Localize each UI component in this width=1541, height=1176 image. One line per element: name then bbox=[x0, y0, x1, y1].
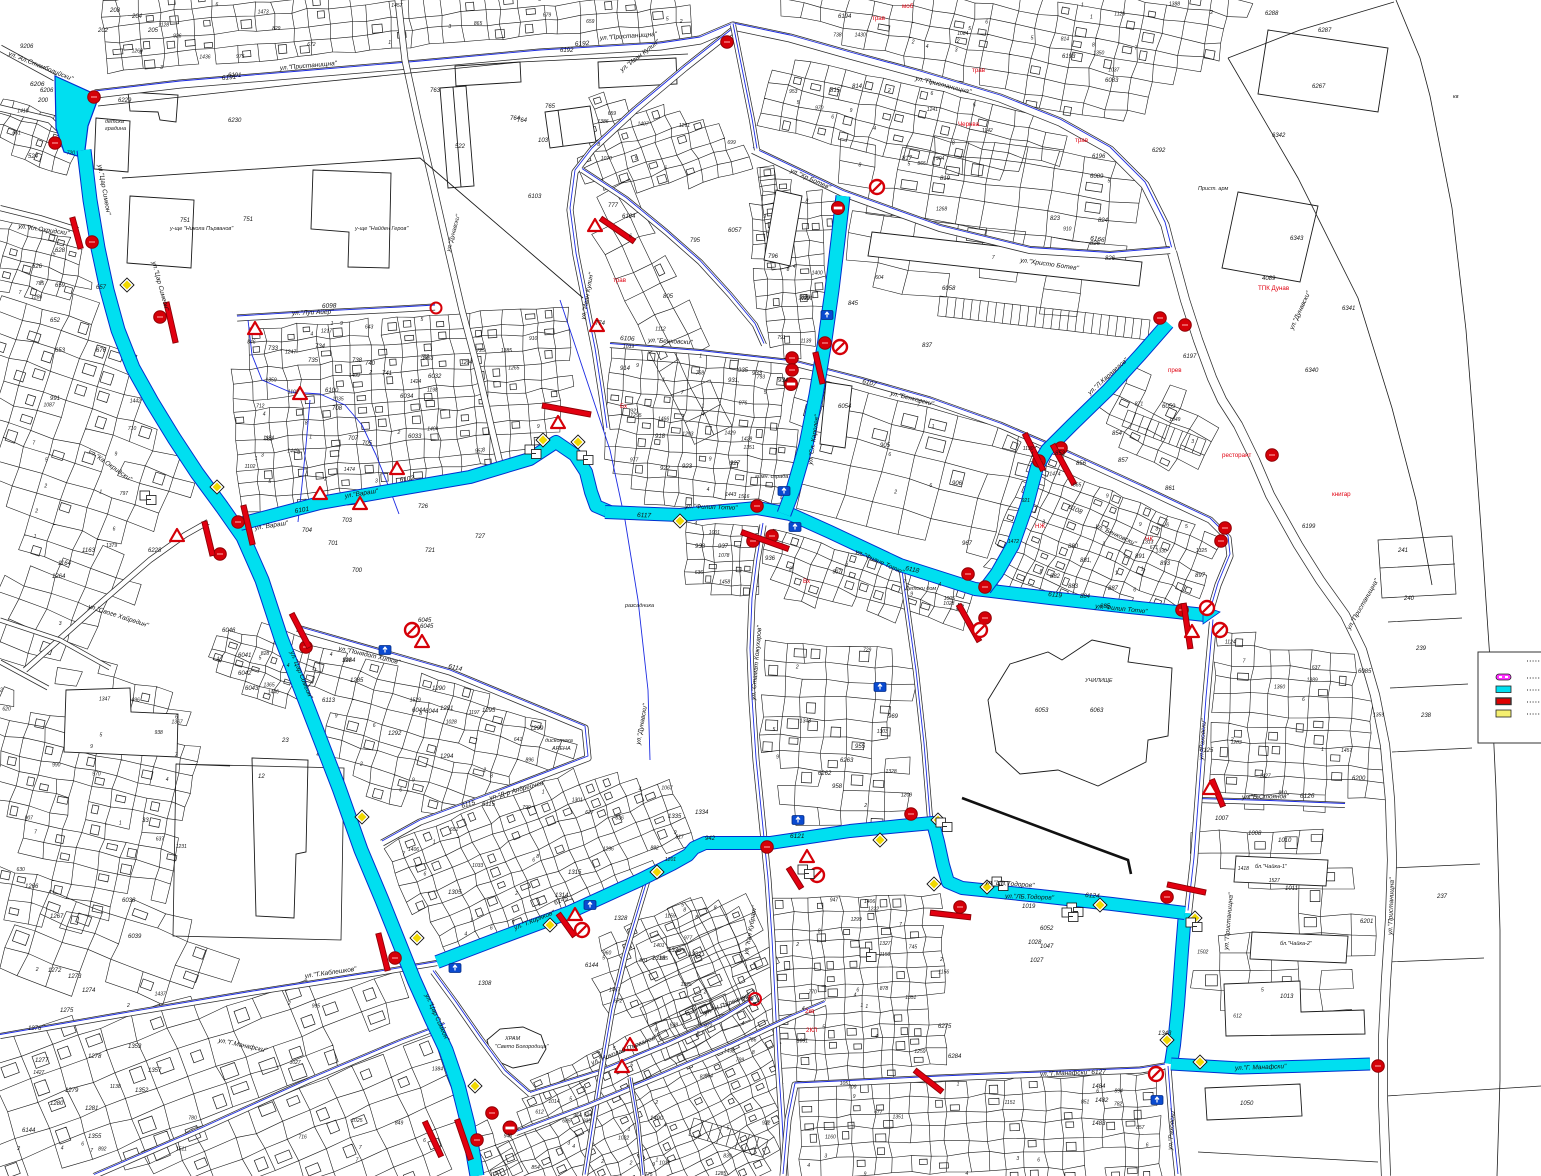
svg-text:5: 5 bbox=[100, 732, 103, 738]
svg-text:6046: 6046 bbox=[222, 628, 236, 634]
svg-text:1430: 1430 bbox=[855, 32, 866, 38]
svg-text:1267: 1267 bbox=[50, 914, 64, 920]
svg-text:1281: 1281 bbox=[85, 1106, 98, 1112]
svg-text:955: 955 bbox=[855, 744, 866, 750]
svg-text:626: 626 bbox=[32, 264, 43, 270]
svg-text:882: 882 bbox=[1050, 574, 1061, 580]
svg-text:4: 4 bbox=[287, 663, 290, 669]
svg-text:1347: 1347 bbox=[99, 696, 110, 702]
svg-text:6: 6 bbox=[929, 483, 932, 489]
svg-text:1: 1 bbox=[1115, 571, 1118, 577]
svg-text:1360: 1360 bbox=[1274, 685, 1285, 691]
svg-text:1286: 1286 bbox=[31, 295, 42, 301]
svg-text:1527: 1527 bbox=[1269, 878, 1280, 884]
svg-text:4: 4 bbox=[330, 652, 333, 658]
svg-text:6: 6 bbox=[216, 2, 219, 8]
svg-text:799: 799 bbox=[522, 805, 531, 811]
svg-text:923: 923 bbox=[682, 464, 693, 470]
svg-text:2: 2 bbox=[1209, 10, 1213, 16]
svg-text:240: 240 bbox=[1403, 596, 1415, 602]
svg-text:707: 707 bbox=[348, 436, 359, 442]
svg-text:1446: 1446 bbox=[268, 690, 279, 696]
svg-text:1: 1 bbox=[34, 534, 37, 540]
svg-text:815: 815 bbox=[830, 88, 841, 94]
svg-text:1457: 1457 bbox=[391, 3, 402, 9]
svg-text:9: 9 bbox=[1106, 493, 1109, 499]
svg-text:884: 884 bbox=[1080, 594, 1091, 600]
svg-text:1050: 1050 bbox=[1240, 1101, 1254, 1107]
svg-text:712: 712 bbox=[256, 404, 265, 410]
svg-text:865: 865 bbox=[1073, 482, 1082, 488]
svg-text:735: 735 bbox=[308, 358, 319, 364]
svg-text:853: 853 bbox=[1055, 451, 1066, 457]
svg-text:8: 8 bbox=[859, 163, 862, 169]
svg-text:524: 524 bbox=[28, 154, 39, 160]
svg-text:914: 914 bbox=[620, 366, 631, 372]
svg-text:857: 857 bbox=[1118, 458, 1129, 464]
svg-text:1027: 1027 bbox=[1030, 958, 1044, 964]
svg-text:1: 1 bbox=[388, 40, 391, 46]
svg-text:1: 1 bbox=[1141, 566, 1144, 572]
svg-text:1355: 1355 bbox=[88, 1134, 102, 1140]
svg-text:922: 922 bbox=[660, 466, 671, 472]
svg-text:6: 6 bbox=[985, 19, 988, 25]
svg-text:6117: 6117 bbox=[637, 512, 652, 519]
svg-text:726: 726 bbox=[418, 504, 429, 510]
svg-text:1150: 1150 bbox=[880, 952, 891, 958]
svg-text:653: 653 bbox=[55, 348, 66, 354]
svg-text:дискотека: дискотека bbox=[545, 738, 573, 744]
svg-text:7: 7 bbox=[359, 1145, 362, 1151]
svg-text:810: 810 bbox=[1278, 790, 1287, 796]
svg-text:7: 7 bbox=[34, 830, 37, 836]
svg-text:1275: 1275 bbox=[60, 1008, 74, 1014]
svg-text:1: 1 bbox=[628, 1127, 631, 1133]
svg-text:2: 2 bbox=[863, 803, 867, 809]
svg-text:8: 8 bbox=[419, 711, 422, 717]
svg-text:814,: 814, bbox=[852, 84, 864, 90]
svg-text:6: 6 bbox=[1166, 523, 1169, 529]
svg-text:627: 627 bbox=[585, 810, 594, 816]
svg-text:1084: 1084 bbox=[957, 31, 968, 37]
svg-text:1067: 1067 bbox=[661, 786, 672, 792]
svg-text:7: 7 bbox=[903, 579, 906, 585]
svg-text:727: 727 bbox=[475, 534, 486, 540]
svg-text:2КЛ: 2КЛ bbox=[806, 1027, 817, 1034]
svg-text:1: 1 bbox=[1090, 15, 1093, 21]
svg-text:807: 807 bbox=[833, 569, 842, 575]
svg-text:1102: 1102 bbox=[288, 390, 299, 396]
svg-text:938: 938 bbox=[155, 730, 164, 736]
svg-text:1379: 1379 bbox=[106, 543, 117, 549]
svg-text:6: 6 bbox=[399, 788, 402, 794]
svg-text:1473: 1473 bbox=[258, 10, 269, 16]
svg-text:964: 964 bbox=[573, 1113, 582, 1119]
svg-text:1388: 1388 bbox=[1169, 1, 1180, 7]
svg-text:1130: 1130 bbox=[1023, 446, 1034, 452]
svg-text:5: 5 bbox=[45, 458, 48, 464]
svg-text:1: 1 bbox=[699, 354, 702, 360]
svg-text:1: 1 bbox=[255, 456, 258, 462]
svg-text:УЧИЛИЩЕ: УЧИЛИЩЕ bbox=[1084, 678, 1113, 684]
svg-text:745: 745 bbox=[909, 945, 918, 951]
svg-text:1269: 1269 bbox=[132, 48, 143, 54]
svg-text:948: 948 bbox=[504, 1133, 513, 1139]
svg-text:1285: 1285 bbox=[350, 678, 364, 684]
svg-text:1025: 1025 bbox=[351, 1118, 362, 1124]
svg-text:6: 6 bbox=[1096, 1089, 1099, 1095]
svg-text:6230: 6230 bbox=[228, 118, 242, 124]
svg-text:1442: 1442 bbox=[130, 399, 141, 405]
svg-text:991: 991 bbox=[50, 396, 60, 402]
svg-text:1259: 1259 bbox=[914, 1049, 925, 1055]
svg-text:1229: 1229 bbox=[801, 296, 812, 302]
svg-text:921: 921 bbox=[1022, 498, 1031, 504]
svg-text:у-ще "Никола Първанов": у-ще "Никола Първанов" bbox=[169, 226, 234, 232]
svg-text:1201: 1201 bbox=[665, 857, 676, 863]
svg-text:1351: 1351 bbox=[893, 1115, 904, 1121]
svg-text:5: 5 bbox=[569, 1097, 572, 1103]
svg-text:1511: 1511 bbox=[176, 1147, 187, 1153]
svg-text:738: 738 bbox=[352, 358, 363, 364]
svg-text:825: 825 bbox=[1090, 241, 1101, 247]
svg-text:612: 612 bbox=[535, 1110, 544, 1116]
svg-text:1001: 1001 bbox=[709, 530, 720, 536]
svg-text:1022: 1022 bbox=[618, 1135, 629, 1141]
svg-text:1305: 1305 bbox=[448, 890, 462, 896]
svg-text:5: 5 bbox=[822, 1025, 825, 1031]
svg-text:935: 935 bbox=[583, 1119, 592, 1125]
svg-text:7: 7 bbox=[917, 403, 920, 409]
svg-text:5: 5 bbox=[1185, 524, 1188, 530]
svg-text:854: 854 bbox=[1112, 431, 1123, 437]
svg-text:1458: 1458 bbox=[719, 580, 730, 586]
svg-text:679: 679 bbox=[543, 13, 552, 19]
svg-text:1294: 1294 bbox=[440, 754, 454, 760]
svg-text:6038: 6038 bbox=[122, 898, 136, 904]
svg-text:8: 8 bbox=[305, 420, 308, 426]
svg-text:9: 9 bbox=[512, 920, 515, 926]
svg-text:1049: 1049 bbox=[1169, 417, 1180, 423]
svg-text:1039: 1039 bbox=[623, 344, 634, 350]
svg-text:1308: 1308 bbox=[478, 981, 492, 987]
svg-text:947: 947 bbox=[830, 897, 839, 903]
svg-text:6193: 6193 bbox=[1062, 54, 1076, 60]
svg-text:782: 782 bbox=[421, 354, 430, 360]
svg-text:разсадника: разсадника bbox=[624, 603, 654, 609]
svg-text:6045: 6045 bbox=[418, 618, 432, 624]
svg-text:677: 677 bbox=[874, 1109, 883, 1115]
svg-text:926: 926 bbox=[173, 34, 182, 40]
svg-text:1365: 1365 bbox=[264, 682, 275, 688]
svg-text:трав: трав bbox=[972, 67, 986, 74]
svg-text:кв: кв bbox=[1453, 94, 1459, 100]
svg-text:6: 6 bbox=[697, 1031, 700, 1037]
svg-text:814: 814 bbox=[1061, 37, 1070, 43]
svg-text:1472: 1472 bbox=[1008, 539, 1019, 545]
svg-text:1330: 1330 bbox=[668, 948, 682, 954]
svg-text:9: 9 bbox=[850, 108, 853, 114]
svg-text:700: 700 bbox=[352, 568, 363, 574]
svg-text:795: 795 bbox=[690, 238, 701, 244]
svg-text:967: 967 bbox=[962, 541, 973, 547]
svg-text:801: 801 bbox=[639, 958, 648, 964]
svg-text:854: 854 bbox=[531, 1165, 540, 1171]
svg-text:969: 969 bbox=[888, 714, 899, 720]
svg-text:922: 922 bbox=[762, 1121, 771, 1127]
svg-text:1314: 1314 bbox=[555, 893, 569, 899]
svg-text:5: 5 bbox=[635, 156, 638, 162]
svg-text:237: 237 bbox=[1436, 894, 1448, 900]
svg-text:1409: 1409 bbox=[349, 373, 360, 379]
svg-text:641: 641 bbox=[514, 737, 523, 743]
svg-text:6: 6 bbox=[831, 115, 834, 121]
svg-text:2: 2 bbox=[911, 39, 915, 45]
svg-text:6: 6 bbox=[1302, 697, 1305, 703]
svg-text:1: 1 bbox=[932, 424, 935, 430]
svg-text:897: 897 bbox=[1195, 573, 1206, 579]
svg-text:705: 705 bbox=[362, 441, 373, 447]
svg-text:721: 721 bbox=[425, 548, 435, 554]
svg-text:972: 972 bbox=[704, 1023, 713, 1029]
svg-text:1163: 1163 bbox=[82, 548, 96, 554]
svg-text:958: 958 bbox=[832, 784, 843, 790]
svg-text:1197: 1197 bbox=[469, 710, 480, 716]
svg-text:708: 708 bbox=[332, 406, 343, 412]
svg-text:871: 871 bbox=[1135, 402, 1144, 408]
svg-text:883: 883 bbox=[1068, 584, 1079, 590]
svg-text:659: 659 bbox=[55, 283, 66, 289]
svg-text:8: 8 bbox=[1040, 569, 1043, 575]
svg-text:887: 887 bbox=[1108, 586, 1119, 592]
svg-text:7: 7 bbox=[1135, 46, 1138, 52]
svg-text:1265: 1265 bbox=[508, 366, 519, 372]
svg-text:6034: 6034 bbox=[400, 394, 414, 400]
svg-text:1261: 1261 bbox=[679, 123, 690, 129]
svg-text:2: 2 bbox=[287, 1001, 291, 1007]
svg-text:5: 5 bbox=[908, 162, 911, 168]
svg-text:1266: 1266 bbox=[25, 884, 39, 890]
svg-text:7: 7 bbox=[1243, 659, 1246, 665]
svg-text:6144: 6144 bbox=[22, 1128, 36, 1134]
svg-text:2: 2 bbox=[482, 768, 486, 774]
svg-text:202: 202 bbox=[97, 28, 109, 34]
svg-text:9: 9 bbox=[1139, 522, 1142, 528]
svg-text:995: 995 bbox=[312, 1003, 321, 1009]
svg-text:6032: 6032 bbox=[428, 374, 442, 380]
svg-text:765: 765 bbox=[545, 104, 556, 110]
svg-text:1293: 1293 bbox=[682, 431, 693, 437]
svg-text:935: 935 bbox=[738, 368, 749, 374]
svg-text:1332: 1332 bbox=[688, 952, 702, 958]
svg-text:636: 636 bbox=[615, 815, 624, 821]
svg-text:837: 837 bbox=[922, 343, 933, 349]
svg-text:1209: 1209 bbox=[901, 792, 912, 798]
svg-text:876: 876 bbox=[739, 401, 748, 407]
svg-text:1301: 1301 bbox=[572, 798, 583, 804]
svg-text:849: 849 bbox=[395, 1121, 404, 1127]
svg-text:1398: 1398 bbox=[742, 997, 753, 1003]
svg-text:4: 4 bbox=[965, 1171, 968, 1176]
svg-text:книгар: книгар bbox=[1332, 491, 1351, 498]
svg-text:8: 8 bbox=[536, 854, 539, 860]
svg-text:977: 977 bbox=[630, 458, 639, 464]
svg-text:1410: 1410 bbox=[17, 109, 28, 115]
svg-text:661: 661 bbox=[12, 130, 21, 136]
svg-text:1407: 1407 bbox=[638, 121, 649, 127]
svg-text:бл."Чайка-1": бл."Чайка-1" bbox=[1255, 863, 1288, 870]
svg-text:2кв: 2кв bbox=[805, 1008, 815, 1015]
svg-text:1008: 1008 bbox=[1248, 831, 1262, 837]
svg-text:1: 1 bbox=[119, 820, 122, 826]
svg-text:1502: 1502 bbox=[1197, 950, 1208, 956]
svg-text:1290: 1290 bbox=[432, 686, 446, 692]
svg-text:1283: 1283 bbox=[1231, 740, 1242, 746]
svg-text:6197: 6197 bbox=[1183, 354, 1197, 360]
svg-text:6: 6 bbox=[532, 858, 535, 864]
svg-text:1033: 1033 bbox=[472, 863, 483, 869]
svg-text:5: 5 bbox=[797, 100, 800, 106]
svg-text:6: 6 bbox=[888, 452, 891, 458]
svg-text:1351: 1351 bbox=[744, 445, 755, 451]
svg-text:5: 5 bbox=[421, 317, 424, 323]
svg-text:918: 918 bbox=[655, 434, 666, 440]
svg-text:796: 796 bbox=[768, 254, 779, 260]
svg-text:3: 3 bbox=[1016, 1156, 1019, 1162]
svg-text:6267: 6267 bbox=[1312, 84, 1326, 90]
svg-text:725: 725 bbox=[477, 348, 486, 354]
svg-text:1350: 1350 bbox=[1093, 50, 1104, 56]
svg-text:1292: 1292 bbox=[388, 731, 402, 737]
svg-text:7: 7 bbox=[19, 290, 22, 296]
svg-text:9: 9 bbox=[674, 830, 677, 836]
svg-text:5: 5 bbox=[268, 479, 271, 485]
svg-text:8: 8 bbox=[597, 142, 600, 148]
svg-text:Вх: Вх bbox=[803, 578, 811, 585]
svg-text:882: 882 bbox=[651, 846, 660, 852]
svg-text:907: 907 bbox=[25, 816, 34, 822]
svg-text:4: 4 bbox=[707, 487, 710, 493]
svg-text:1013: 1013 bbox=[1280, 994, 1294, 1000]
svg-text:градина: градина bbox=[105, 126, 126, 132]
svg-text:1279: 1279 bbox=[65, 1088, 79, 1094]
svg-text:6: 6 bbox=[424, 872, 427, 878]
svg-text:699: 699 bbox=[727, 140, 736, 146]
svg-text:1: 1 bbox=[1031, 452, 1034, 458]
svg-text:710: 710 bbox=[128, 426, 137, 432]
svg-text:8: 8 bbox=[490, 774, 493, 780]
svg-text:921: 921 bbox=[630, 409, 639, 415]
svg-text:1138: 1138 bbox=[110, 1084, 121, 1090]
svg-text:6100: 6100 bbox=[325, 388, 339, 394]
svg-text:637: 637 bbox=[1312, 665, 1321, 671]
svg-text:6126: 6126 bbox=[1300, 793, 1315, 800]
svg-text:1389: 1389 bbox=[1307, 678, 1318, 684]
svg-text:2: 2 bbox=[368, 370, 372, 376]
svg-text:239: 239 bbox=[1415, 646, 1427, 652]
svg-text:6: 6 bbox=[373, 723, 376, 729]
svg-text:1427: 1427 bbox=[33, 1070, 44, 1076]
svg-text:1198: 1198 bbox=[427, 388, 438, 394]
svg-text:6196: 6196 bbox=[1092, 154, 1106, 160]
svg-text:205: 205 bbox=[147, 28, 159, 34]
svg-text:637: 637 bbox=[156, 836, 165, 842]
svg-text:4: 4 bbox=[873, 126, 876, 132]
svg-text:3: 3 bbox=[567, 1141, 570, 1147]
svg-text:6106: 6106 bbox=[620, 335, 635, 343]
svg-text:1005: 1005 bbox=[944, 596, 955, 602]
svg-text:1231: 1231 bbox=[176, 844, 187, 850]
svg-text:6206: 6206 bbox=[30, 81, 45, 88]
svg-text:628: 628 bbox=[55, 248, 66, 254]
svg-text:1128: 1128 bbox=[158, 22, 169, 28]
svg-text:845: 845 bbox=[848, 301, 859, 307]
svg-text:1467: 1467 bbox=[609, 988, 620, 994]
svg-text:1437: 1437 bbox=[155, 991, 166, 997]
svg-text:ТПК Дунав: ТПК Дунав bbox=[1258, 285, 1290, 292]
svg-text:8: 8 bbox=[818, 928, 821, 934]
svg-text:1490: 1490 bbox=[650, 1116, 664, 1122]
svg-text:6284: 6284 bbox=[948, 1054, 962, 1060]
svg-text:1280: 1280 bbox=[50, 1101, 64, 1107]
svg-text:1: 1 bbox=[957, 1082, 960, 1088]
svg-text:906: 906 bbox=[952, 481, 963, 487]
svg-text:977: 977 bbox=[684, 935, 693, 941]
svg-text:детска: детска bbox=[105, 119, 124, 125]
svg-text:6: 6 bbox=[856, 988, 859, 994]
svg-text:1027: 1027 bbox=[290, 1060, 301, 1066]
svg-text:1325: 1325 bbox=[681, 982, 692, 988]
svg-text:604: 604 bbox=[875, 275, 884, 281]
svg-text:6192: 6192 bbox=[560, 48, 574, 54]
svg-text:"Свето Богородица": "Свето Богородица" bbox=[495, 1044, 550, 1050]
svg-text:1335: 1335 bbox=[668, 814, 682, 820]
svg-text:934: 934 bbox=[778, 378, 789, 384]
svg-text:1010: 1010 bbox=[1278, 838, 1292, 844]
svg-text:4: 4 bbox=[793, 264, 796, 270]
svg-text:7: 7 bbox=[90, 1148, 93, 1154]
svg-text:6275: 6275 bbox=[938, 1024, 952, 1030]
svg-text:6043: 6043 bbox=[245, 686, 259, 692]
svg-text:3: 3 bbox=[448, 24, 451, 30]
svg-text:1328: 1328 bbox=[614, 916, 628, 922]
svg-text:4: 4 bbox=[464, 932, 467, 938]
svg-text:738: 738 bbox=[833, 32, 842, 38]
svg-text:910: 910 bbox=[529, 336, 538, 342]
svg-text:1: 1 bbox=[470, 918, 473, 924]
svg-text:4: 4 bbox=[664, 1123, 667, 1129]
svg-text:5: 5 bbox=[602, 956, 605, 962]
svg-text:620: 620 bbox=[2, 707, 11, 713]
svg-text:5: 5 bbox=[968, 26, 971, 32]
svg-text:2: 2 bbox=[893, 489, 897, 495]
svg-text:780: 780 bbox=[188, 1116, 197, 1122]
svg-text:701: 701 bbox=[328, 541, 338, 547]
svg-text:4: 4 bbox=[938, 582, 941, 588]
svg-text:1: 1 bbox=[860, 1003, 863, 1009]
svg-text:трав: трав bbox=[1075, 137, 1089, 144]
svg-text:9: 9 bbox=[412, 777, 415, 783]
svg-text:797: 797 bbox=[120, 491, 129, 497]
svg-text:6: 6 bbox=[490, 925, 493, 931]
svg-text:1160: 1160 bbox=[825, 1135, 836, 1141]
svg-text:1: 1 bbox=[433, 840, 436, 846]
svg-text:2: 2 bbox=[600, 1159, 604, 1165]
svg-text:1404: 1404 bbox=[427, 426, 438, 432]
svg-text:936: 936 bbox=[765, 556, 776, 562]
svg-text:817: 817 bbox=[676, 834, 685, 840]
svg-text:6342: 6342 bbox=[1272, 133, 1286, 139]
